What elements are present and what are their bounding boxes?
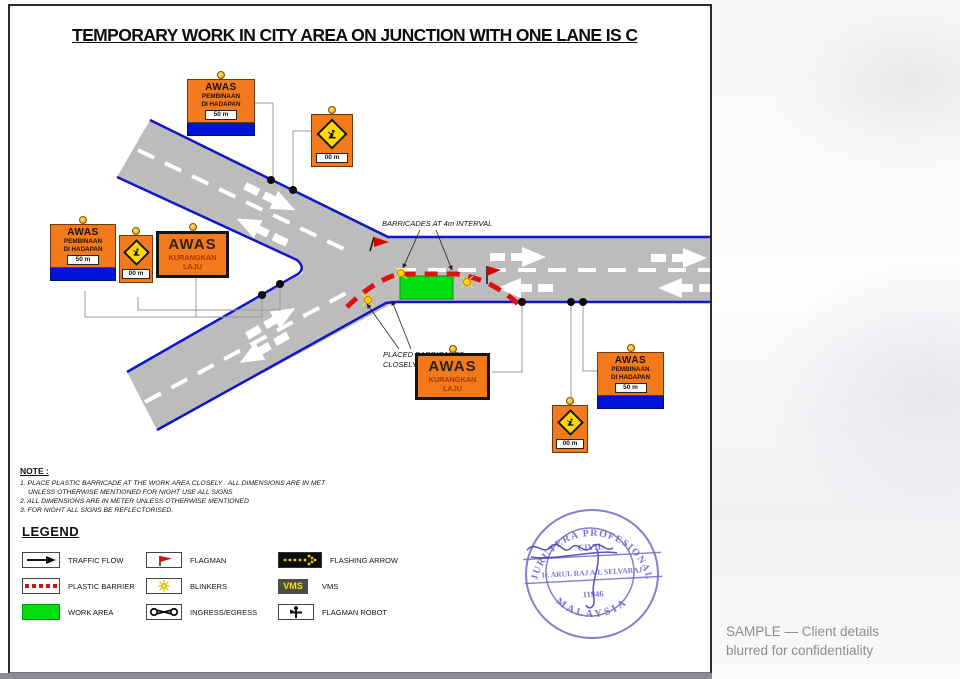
plastic-barrier-icon [22, 578, 60, 594]
note-line: UNLESS OTHERWISE MENTIONED FOR NIGHT USE… [20, 488, 325, 497]
sign-blue-strip [597, 396, 664, 409]
annotation-placed-line2: CLOSELY [383, 360, 418, 369]
legend-item-plastic-barrier: PLASTIC BARRIER [22, 578, 146, 594]
sign-blue-strip [187, 123, 255, 136]
legend-label: WORK AREA [68, 608, 113, 617]
sign-distance: 00 m [316, 153, 348, 163]
legend-item-work-area: WORK AREA [22, 604, 146, 620]
legend-label: PLASTIC BARRIER [68, 582, 135, 591]
sign-awas-pembinaan-right: AWAS PEMBINAAN DI HADAPAN 50 m [597, 344, 664, 409]
sign-title: AWAS [52, 227, 114, 238]
sign-panel: AWAS KURANGKAN LAJU [156, 231, 229, 278]
blinker-icon [627, 344, 635, 352]
sign-awas-kurangkan-left: AWAS KURANGKAN LAJU [156, 223, 229, 278]
blinker-icon [189, 223, 197, 231]
ingress-egress-icon [146, 604, 182, 620]
worker-diamond-icon [316, 118, 347, 149]
sign-line3: DI HADAPAN [52, 246, 114, 254]
legend-item-traffic-flow: TRAFFIC FLOW [22, 552, 146, 568]
stamp-field: CIVIL [577, 541, 604, 552]
sign-distance: 50 m [67, 255, 99, 265]
annotation-barricade-interval: BARRICADES AT 4m INTERVAL [382, 219, 492, 228]
blinker-icon [328, 106, 336, 114]
blinker-icon [217, 71, 225, 79]
watermark-line2: blurred for confidentiality [726, 641, 879, 660]
legend-label: TRAFFIC FLOW [68, 556, 123, 565]
drawing-title: TEMPORARY WORK IN CITY AREA ON JUNCTION … [72, 25, 637, 46]
sign-line2: PEMBINAAN [189, 93, 253, 101]
flashing-arrow-icon [278, 552, 322, 568]
legend-item-flagman: FLAGMAN [146, 552, 278, 568]
sign-distance: 00 m [122, 269, 150, 279]
blinker-icon [449, 345, 457, 353]
legend-item-blinkers: BLINKERS [146, 578, 278, 594]
sign-panel: AWAS KURANGKAN LAJU [415, 353, 490, 400]
sign-awas-pembinaan-left: AWAS PEMBINAAN DI HADAPAN 50 m [50, 216, 116, 281]
sign-title: AWAS [189, 82, 253, 93]
legend-label: INGRESS/EGRESS [190, 608, 257, 617]
sign-worker-ahead-left: 00 m [119, 227, 153, 283]
legend-label: VMS [322, 582, 338, 591]
sign-line3: DI HADAPAN [599, 374, 662, 382]
sign-distance: 00 m [556, 439, 584, 449]
blinkers-icon [146, 578, 182, 594]
sign-line2: PEMBINAAN [52, 238, 114, 246]
note-line: 2. ALL DIMENSIONS ARE IN METER UNLESS OT… [20, 497, 325, 506]
traffic-flow-icon [22, 552, 60, 568]
note-heading: NOTE : [20, 466, 325, 476]
worker-diamond-icon [123, 239, 150, 266]
note-line: 3. FOR NIGHT ALL SIGNS BE REFLECTORISED. [20, 506, 325, 515]
legend-heading: LEGEND [22, 524, 438, 539]
work-area [400, 276, 453, 299]
legend-section: LEGEND TRAFFIC FLOW FLAGMAN [22, 524, 438, 625]
engineer-stamp: JURUTERA PROFESIONAL MALAYSIA CIVIL Ir. … [515, 498, 680, 658]
sign-subtitle: KURANGKAN LAJU [420, 375, 485, 393]
note-section: NOTE : 1. PLACE PLASTIC BARRICADE AT THE… [20, 466, 325, 515]
vms-icon: VMS [278, 579, 308, 594]
sign-subtitle: KURANGKAN LAJU [161, 253, 224, 271]
sign-awas-kurangkan-center: AWAS KURANGKAN LAJU [415, 345, 490, 400]
sign-panel: 00 m [311, 114, 353, 167]
sign-title: AWAS [420, 359, 485, 375]
sign-title: AWAS [161, 237, 224, 253]
confidentiality-panel [712, 0, 960, 679]
sign-line2: PEMBINAAN [599, 366, 662, 374]
legend-item-vms: VMS VMS [278, 579, 438, 594]
legend-item-flagman-robot: FLAGMAN ROBOT [278, 604, 438, 620]
legend-item-ingress-egress: INGRESS/EGRESS [146, 604, 278, 620]
sign-distance: 50 m [205, 110, 237, 120]
sign-worker-ahead-top: 00 m [311, 106, 353, 167]
legend-label: BLINKERS [190, 582, 227, 591]
flagman-robot-icon [278, 604, 314, 620]
legend-grid: TRAFFIC FLOW FLAGMAN [22, 547, 438, 625]
sign-panel: AWAS PEMBINAAN DI HADAPAN 50 m [597, 352, 664, 396]
blinker-icon [132, 227, 140, 235]
watermark-line1: SAMPLE — Client details [726, 622, 879, 641]
sign-panel: AWAS PEMBINAAN DI HADAPAN 50 m [187, 79, 255, 123]
sign-blue-strip [50, 268, 116, 281]
watermark-text: SAMPLE — Client details blurred for conf… [726, 622, 879, 660]
sign-awas-pembinaan-top: AWAS PEMBINAAN DI HADAPAN 50 m [187, 71, 255, 136]
legend-label: FLASHING ARROW [330, 556, 398, 565]
flagman-icon [146, 552, 182, 568]
legend-label: FLAGMAN [190, 556, 226, 565]
sign-line3: DI HADAPAN [189, 101, 253, 109]
sign-distance: 50 m [615, 383, 647, 393]
blinker-icon [566, 397, 574, 405]
bottom-border-strip [0, 673, 712, 679]
work-area-icon [22, 604, 60, 620]
legend-label: FLAGMAN ROBOT [322, 608, 387, 617]
blinker-icon [79, 216, 87, 224]
sign-panel: 00 m [119, 235, 153, 283]
sign-worker-ahead-right: 00 m [552, 397, 588, 453]
sign-title: AWAS [599, 355, 662, 366]
sign-panel: AWAS PEMBINAAN DI HADAPAN 50 m [50, 224, 116, 268]
note-line: 1. PLACE PLASTIC BARRICADE AT THE WORK A… [20, 479, 325, 488]
worker-diamond-icon [557, 409, 584, 436]
legend-item-flashing-arrow: FLASHING ARROW [278, 552, 438, 568]
sign-panel: 00 m [552, 405, 588, 453]
stamp-arc-bottom: MALAYSIA [554, 596, 631, 620]
